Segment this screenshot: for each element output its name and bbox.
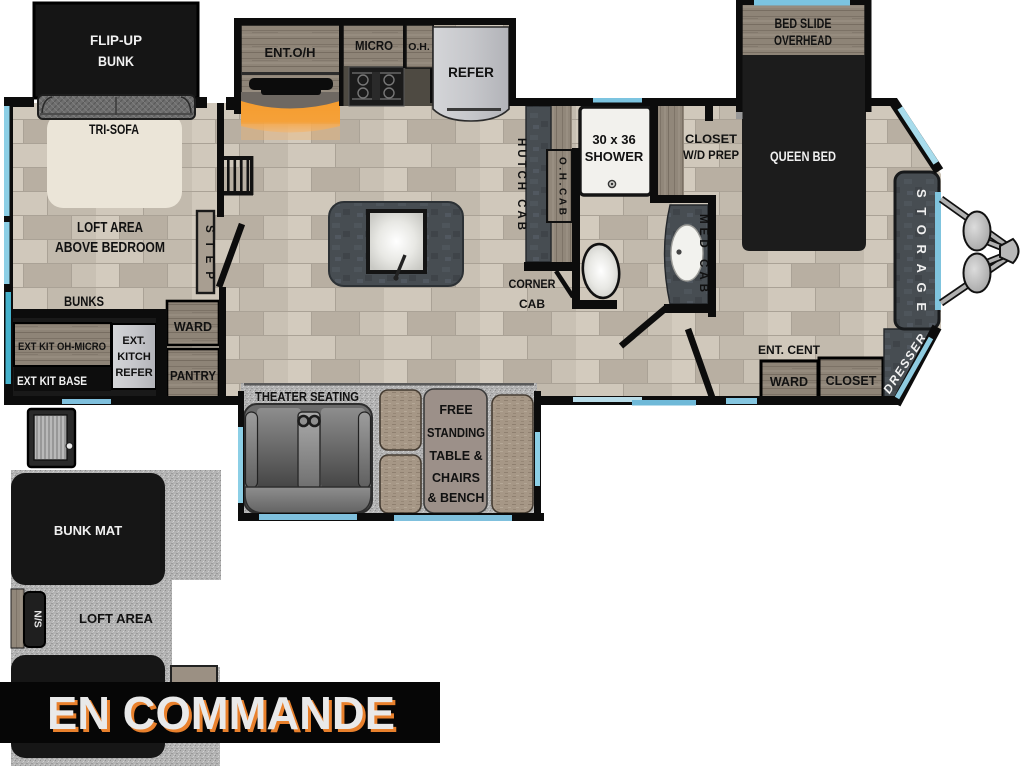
svg-text:WARD: WARD xyxy=(174,320,212,334)
svg-text:LOFT AREA: LOFT AREA xyxy=(77,220,143,236)
svg-text:FREE: FREE xyxy=(439,403,472,417)
svg-text:MICRO: MICRO xyxy=(355,39,393,53)
svg-text:LOFT AREA: LOFT AREA xyxy=(79,611,154,626)
svg-text:CHAIRS: CHAIRS xyxy=(432,471,480,485)
svg-text:CLOSET: CLOSET xyxy=(685,132,738,146)
svg-text:ENT.O/H: ENT.O/H xyxy=(265,45,316,60)
svg-text:HUTCH CAB: HUTCH CAB xyxy=(515,138,527,230)
svg-text:& BENCH: & BENCH xyxy=(428,491,485,505)
svg-text:TABLE &: TABLE & xyxy=(429,449,482,463)
svg-text:OVERHEAD: OVERHEAD xyxy=(774,33,832,48)
svg-text:ABOVE BEDROOM: ABOVE BEDROOM xyxy=(55,240,165,256)
svg-text:EN COMMANDE: EN COMMANDE xyxy=(47,687,395,739)
svg-text:CORNER: CORNER xyxy=(509,277,556,291)
svg-text:ENT. CENT: ENT. CENT xyxy=(758,343,821,357)
svg-text:BUNKS: BUNKS xyxy=(64,293,104,309)
svg-text:REFER: REFER xyxy=(448,65,494,80)
svg-text:W/D PREP: W/D PREP xyxy=(683,148,739,162)
svg-text:FLIP-UP: FLIP-UP xyxy=(90,32,142,48)
svg-text:QUEEN BED: QUEEN BED xyxy=(770,148,836,164)
svg-text:STANDING: STANDING xyxy=(427,426,485,440)
svg-text:BUNK: BUNK xyxy=(98,53,134,69)
svg-text:REFER: REFER xyxy=(115,367,152,379)
svg-text:EXT KIT OH-MICRO: EXT KIT OH-MICRO xyxy=(18,341,106,353)
svg-text:SHOWER: SHOWER xyxy=(585,149,644,164)
svg-text:N/S: N/S xyxy=(32,610,44,628)
svg-text:WARD: WARD xyxy=(770,375,808,389)
svg-text:CLOSET: CLOSET xyxy=(826,374,877,388)
svg-text:O.H.: O.H. xyxy=(408,41,430,53)
svg-text:BED SLIDE: BED SLIDE xyxy=(775,16,832,31)
svg-text:TRI-SOFA: TRI-SOFA xyxy=(89,122,139,137)
svg-text:KITCH: KITCH xyxy=(117,351,151,363)
svg-text:EXT.: EXT. xyxy=(122,335,145,347)
svg-text:THEATER SEATING: THEATER SEATING xyxy=(255,390,359,404)
svg-text:CAB: CAB xyxy=(519,297,545,311)
svg-text:BUNK MAT: BUNK MAT xyxy=(54,523,122,538)
svg-text:PANTRY: PANTRY xyxy=(170,369,217,383)
svg-text:EXT KIT BASE: EXT KIT BASE xyxy=(17,376,87,388)
svg-text:30 x 36: 30 x 36 xyxy=(592,132,635,147)
